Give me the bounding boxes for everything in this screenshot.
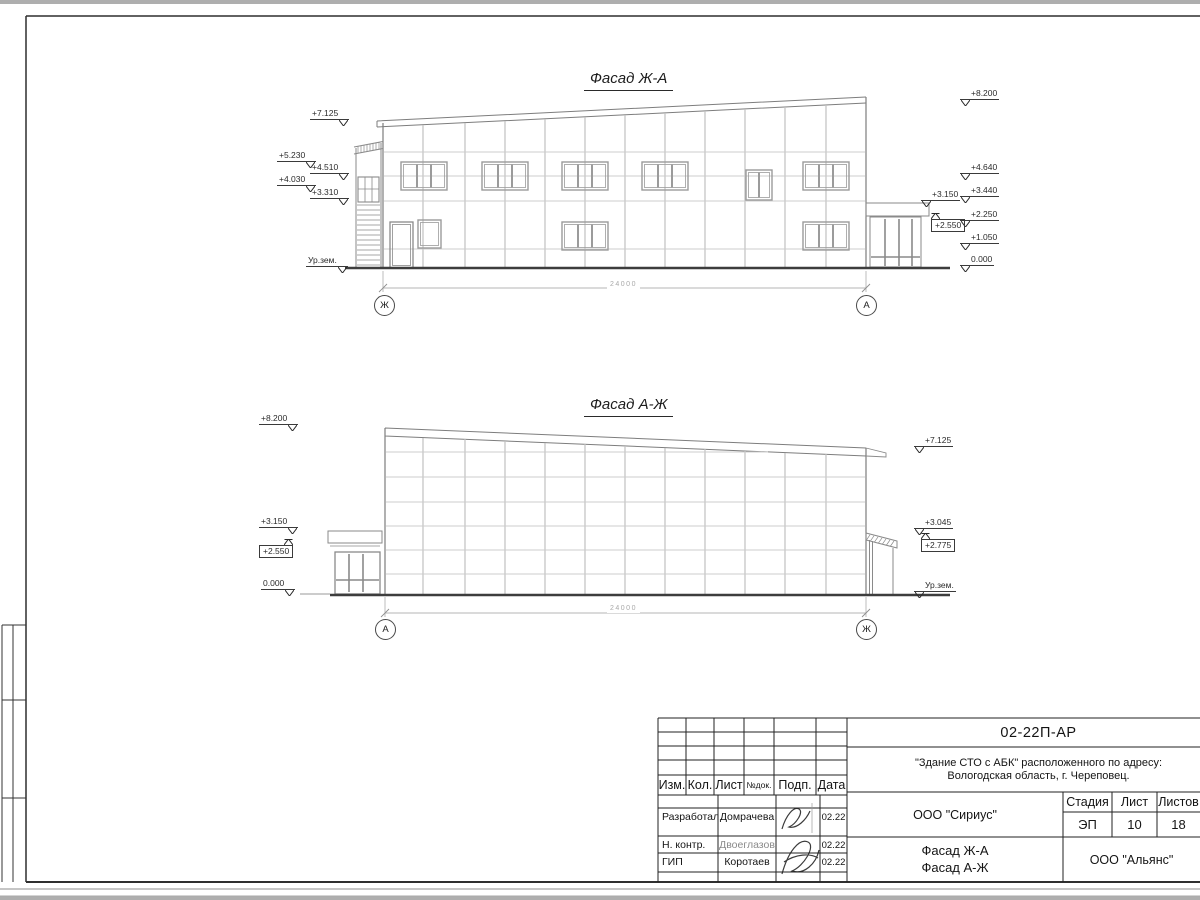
canopy-elevation-mark: +2.550 [259,545,293,558]
elevation-mark: +5.230 [277,151,316,162]
row-date: 02.22 [820,811,847,824]
elevation-mark: +1.050 [960,233,999,244]
elevation-mark: +4.030 [277,175,316,186]
doc-number: 02-22П-АР [847,719,1200,746]
signatures [782,803,819,874]
elevation-mark: +7.125 [310,109,349,120]
elevation-mark: +3.045 [914,518,953,529]
facade-zh-a-drawing [345,97,950,292]
canopy-elevation-mark: +3.150 [921,190,960,201]
axis-bubble: Ж [374,295,395,316]
signature-gip [782,841,819,874]
facade-a-zh-drawing [300,428,950,617]
sheet-title: Фасад Ж-А Фасад А-Ж [847,838,1063,880]
project-address-line2: Вологодская область, г. Череповец. [947,770,1129,784]
row-role: ГИП [659,855,717,869]
sheet-title-line1: Фасад Ж-А [921,842,988,859]
axis-bubble: Ж [856,619,877,640]
col-list: Лист [714,775,744,795]
left-porch [328,531,382,594]
facade-zh-a-title: Фасад Ж-А [584,70,673,91]
sheet-title-line2: Фасад А-Ж [921,859,988,876]
canopy-elevation-mark: +2.775 [921,539,955,552]
sheet-value: 10 [1112,812,1157,837]
project-address: "Здание СТО с АБК" расположенного по адр… [847,748,1200,792]
drawing-sheet: Фасад Ж-А Фасад А-Ж +7.125 +5.230 +4.510… [0,0,1200,900]
sheets-value: 18 [1157,812,1200,837]
row-role: Н. контр. [659,838,717,852]
elevation-mark: +3.150 [259,517,298,528]
axis-letter: Ж [862,624,871,635]
facade-a-zh-title: Фасад А-Ж [584,396,673,417]
stair-tower [354,142,383,269]
row-date: 02.22 [820,856,847,869]
sheet-label: Лист [1112,792,1157,812]
canopy-elevation-mark: +2.550 [931,219,965,232]
elevation-mark: +3.440 [960,186,999,197]
row-date: 02.22 [820,839,847,852]
company: ООО "Альянс" [1063,837,1200,882]
axis-letter: Ж [380,300,389,311]
signature-razrabotal [782,808,810,829]
elevation-mark: +3.310 [310,188,349,199]
row-role: Разработал [659,810,717,824]
dimension-label: 24000 [607,605,640,613]
elevation-mark: +2.250 [960,210,999,221]
elevation-mark: +8.200 [259,414,298,425]
col-izm: Изм. [658,775,686,795]
row-name: Коротаев [718,855,776,869]
col-data: Дата [816,775,847,795]
axis-letter: А [863,300,869,311]
axis-bubble: А [375,619,396,640]
col-podp: Подп. [774,775,816,795]
col-kol: Кол. [686,775,714,795]
ground-level-mark: Ур.зем. [306,256,348,267]
row-name: Двоеглазов [718,838,776,852]
right-porch [866,533,897,594]
sheets-label: Листов [1157,792,1200,812]
elevation-mark: +7.125 [914,436,953,447]
entrance-door [390,222,413,268]
entrance-porch [866,203,929,267]
ground-level-mark: Ур.зем. [914,581,956,592]
elevation-mark: +4.510 [310,163,349,174]
left-margin-stamp [2,625,26,882]
row-name: Домрачева [718,810,776,824]
elevation-mark: 0.000 [261,579,295,590]
stage-value: ЭП [1063,812,1112,837]
dimension-label: 24000 [607,281,640,289]
axis-bubble: А [856,295,877,316]
designer-org: ООО "Сириус" [847,792,1063,837]
elevation-mark: +4.640 [960,163,999,174]
col-ndok: №док. [744,775,774,795]
project-address-line1: "Здание СТО с АБК" расположенного по адр… [915,757,1162,771]
elevation-mark: 0.000 [960,255,994,266]
elevation-mark: +8.200 [960,89,999,100]
stage-label: Стадия [1063,792,1112,812]
axis-letter: А [382,624,388,635]
